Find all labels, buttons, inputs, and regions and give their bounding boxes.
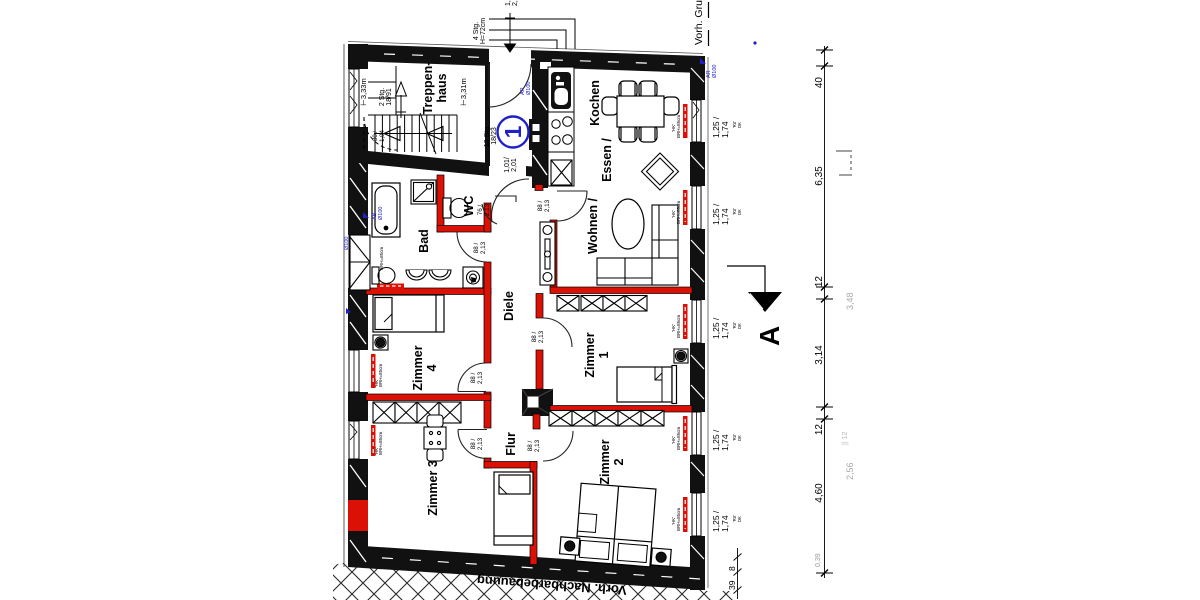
svg-text:Wohnen /: Wohnen /	[586, 197, 600, 254]
svg-text:⊢3,33m: ⊢3,33m	[359, 78, 368, 105]
svg-text:8: 8	[727, 566, 737, 571]
svg-text:W: W	[472, 277, 478, 282]
svg-text:12: 12	[814, 276, 825, 288]
svg-text:haus: haus	[435, 73, 449, 102]
svg-text:1,26/: 1,26/	[505, 0, 512, 6]
svg-text:Ø100: Ø100	[526, 82, 532, 95]
svg-text:'HK': 'HK'	[671, 517, 676, 525]
svg-text:BRH=85cm: BRH=85cm	[676, 201, 681, 224]
svg-text:1,74: 1,74	[720, 208, 730, 225]
svg-text:Bad: Bad	[417, 229, 431, 253]
svg-text:4,60: 4,60	[814, 483, 825, 503]
svg-text:2,01: 2,01	[511, 158, 518, 172]
svg-text:H=72cm: H=72cm	[480, 18, 487, 44]
svg-text:BRH=85cm: BRH=85cm	[379, 247, 384, 270]
svg-text:Zimmer: Zimmer	[583, 332, 597, 377]
svg-text:BRH=85cm: BRH=85cm	[676, 427, 681, 450]
svg-text:Flur: Flur	[504, 432, 518, 456]
svg-text:2,13: 2,13	[480, 241, 487, 254]
svg-text:3,14: 3,14	[814, 345, 825, 365]
svg-text:Diele: Diele	[502, 291, 516, 321]
svg-text:1,01/: 1,01/	[504, 157, 511, 173]
svg-text:DK: DK	[737, 209, 742, 215]
svg-text:3,48: 3,48	[845, 292, 855, 310]
svg-text:2,13: 2,13	[484, 203, 491, 216]
svg-text:'HK': 'HK'	[671, 124, 676, 132]
svg-text:88 /: 88 /	[473, 243, 480, 254]
svg-text:13 Stg.: 13 Stg.	[484, 125, 491, 147]
svg-text:BRH=85cm: BRH=85cm	[676, 315, 681, 338]
svg-text:DK: DK	[737, 435, 742, 441]
svg-text:2,13: 2,13	[538, 330, 545, 343]
svg-text:1,74: 1,74	[720, 121, 730, 138]
svg-text:Ø100: Ø100	[378, 207, 384, 220]
svg-text:Ø100: Ø100	[344, 237, 350, 250]
svg-text:Kochen: Kochen	[588, 80, 602, 126]
svg-text:80 /: 80 /	[373, 131, 379, 141]
svg-text:Zimmer: Zimmer	[411, 345, 425, 390]
svg-text:1: 1	[500, 125, 526, 138]
svg-text:1,74: 1,74	[720, 515, 730, 532]
svg-text:WC: WC	[462, 196, 476, 217]
svg-text:BRH=85cm: BRH=85cm	[676, 115, 681, 138]
svg-text:'HK': 'HK'	[671, 436, 676, 444]
svg-text:2,0: 2,0	[512, 0, 519, 6]
svg-text:2 Stg.: 2 Stg.	[379, 88, 386, 106]
svg-text:12: 12	[814, 424, 825, 436]
svg-text:DK: DK	[737, 323, 742, 329]
svg-text:1,94: 1,94	[380, 130, 386, 142]
svg-text:DK: DK	[737, 122, 742, 128]
svg-text:A: A	[754, 326, 785, 346]
svg-text:6,35: 6,35	[814, 166, 825, 186]
svg-text:4: 4	[425, 364, 439, 371]
svg-text:'HK': 'HK'	[374, 379, 379, 387]
svg-text:DK: DK	[737, 516, 742, 522]
svg-text:88 /: 88 /	[537, 201, 544, 212]
svg-text:39: 39	[727, 580, 737, 590]
svg-text:0,39: 0,39	[815, 553, 822, 567]
svg-text:'HK': 'HK'	[374, 447, 379, 455]
svg-text:⊢3,31m: ⊢3,31m	[459, 78, 468, 105]
svg-text:Zimmer 3: Zimmer 3	[426, 460, 440, 516]
svg-text:88 /: 88 /	[470, 373, 477, 384]
svg-text:40: 40	[814, 77, 825, 89]
svg-text:1: 1	[597, 351, 611, 358]
svg-text:Treppen-: Treppen-	[421, 62, 435, 115]
svg-text:Essen /: Essen /	[600, 138, 614, 182]
svg-text:|| 12: || 12	[842, 432, 849, 445]
svg-text:2,13: 2,13	[477, 437, 484, 450]
svg-text:2: 2	[612, 458, 626, 465]
svg-text:2,13: 2,13	[544, 199, 551, 212]
svg-text:Zimmer: Zimmer	[598, 439, 612, 484]
svg-text:88 /: 88 /	[531, 332, 538, 343]
svg-text:'HK': 'HK'	[671, 324, 676, 332]
svg-text:2,56: 2,56	[845, 462, 855, 480]
svg-text:Ø100: Ø100	[712, 65, 718, 78]
svg-text:76 /: 76 /	[477, 205, 484, 216]
svg-text:2,13: 2,13	[534, 439, 541, 452]
svg-text:4 Stg.: 4 Stg.	[473, 22, 480, 40]
svg-text:88 /: 88 /	[470, 439, 477, 450]
svg-text:88 /: 88 /	[527, 441, 534, 452]
svg-text:1,74: 1,74	[720, 434, 730, 451]
svg-text:Vorh. Gru: Vorh. Gru	[693, 0, 705, 45]
svg-text:1,74: 1,74	[720, 322, 730, 339]
svg-text:'HK': 'HK'	[671, 210, 676, 218]
svg-text:2,13: 2,13	[477, 371, 484, 384]
svg-text:18/91: 18/91	[386, 88, 393, 106]
svg-text:BRH=85cm: BRH=85cm	[676, 508, 681, 531]
